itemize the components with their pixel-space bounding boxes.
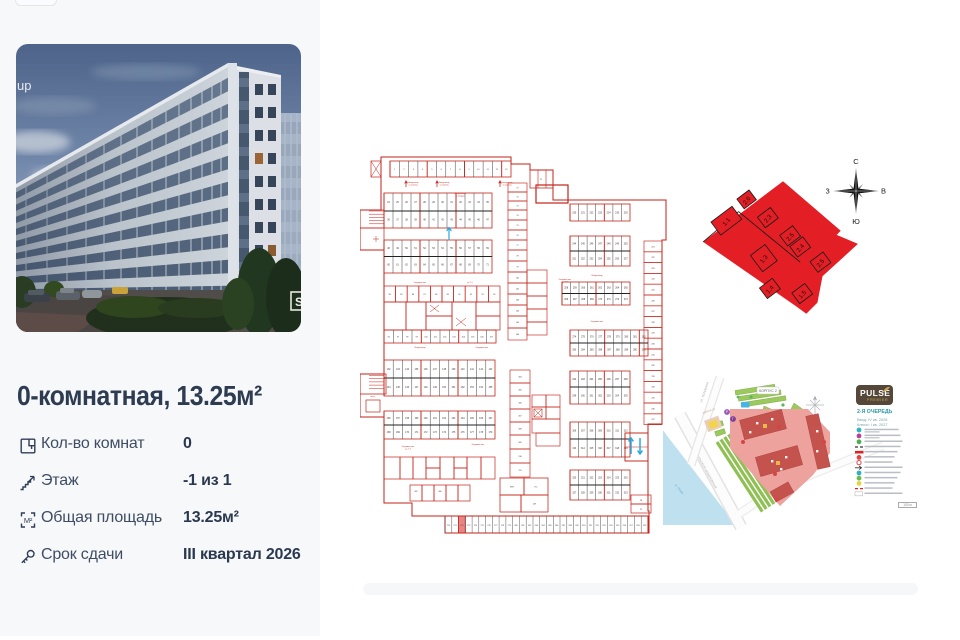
svg-text:по пандусу: по пандусу <box>455 195 464 197</box>
svg-text:233: 233 <box>598 212 603 214</box>
svg-text:271: 271 <box>454 525 458 527</box>
svg-text:259: 259 <box>573 288 578 290</box>
svg-text:55: 55 <box>450 248 453 250</box>
svg-text:235: 235 <box>651 398 655 400</box>
svg-text:314: 314 <box>581 448 586 450</box>
svg-text:323: 323 <box>598 477 603 479</box>
svg-text:281: 281 <box>633 336 638 338</box>
svg-text:311: 311 <box>615 430 619 432</box>
svg-text:66: 66 <box>441 265 444 267</box>
svg-text:88: 88 <box>435 294 438 296</box>
svg-text:101: 101 <box>516 277 520 279</box>
svg-text:71: 71 <box>486 265 489 267</box>
svg-text:287: 287 <box>607 349 612 351</box>
svg-text:27: 27 <box>414 202 417 204</box>
svg-text:277: 277 <box>598 336 603 338</box>
svg-text:290: 290 <box>582 525 586 527</box>
svg-text:У2: У2 <box>540 179 542 181</box>
svg-text:304: 304 <box>615 395 620 397</box>
svg-text:327: 327 <box>572 492 577 494</box>
svg-text:292: 292 <box>572 379 577 381</box>
svg-text:72: 72 <box>516 196 519 198</box>
svg-text:57: 57 <box>468 248 471 250</box>
svg-text:277: 277 <box>494 525 498 527</box>
svg-text:332: 332 <box>615 492 620 494</box>
svg-text:28: 28 <box>423 202 426 204</box>
svg-text:up: up <box>17 78 31 93</box>
svg-text:35: 35 <box>486 202 489 204</box>
svg-text:139: 139 <box>451 369 456 371</box>
svg-text:236: 236 <box>624 212 629 214</box>
svg-text:51: 51 <box>414 248 417 250</box>
svg-text:58: 58 <box>477 248 480 250</box>
svg-text:156: 156 <box>387 418 392 420</box>
svg-text:317: 317 <box>607 448 612 450</box>
svg-text:293: 293 <box>602 525 606 527</box>
svg-text:74: 74 <box>516 215 519 217</box>
svg-text:152: 152 <box>461 387 466 389</box>
svg-text:303: 303 <box>607 395 612 397</box>
svg-text:33: 33 <box>468 202 471 204</box>
svg-text:164: 164 <box>461 418 466 420</box>
svg-text:68: 68 <box>459 265 462 267</box>
svg-text:61: 61 <box>396 265 399 267</box>
svg-text:90: 90 <box>458 294 461 296</box>
svg-text:174: 174 <box>442 432 447 434</box>
svg-text:311: 311 <box>518 470 522 472</box>
svg-text:255: 255 <box>607 258 612 260</box>
svg-text:320: 320 <box>572 477 577 479</box>
svg-text:63: 63 <box>414 265 417 267</box>
svg-text:138: 138 <box>442 369 447 371</box>
svg-text:155: 155 <box>488 387 493 389</box>
svg-text:276: 276 <box>487 525 491 527</box>
svg-text:2: 2 <box>403 169 405 171</box>
svg-text:308: 308 <box>589 430 594 432</box>
svg-text:76: 76 <box>516 235 519 237</box>
svg-text:104: 104 <box>516 310 520 312</box>
svg-text:41: 41 <box>432 219 435 221</box>
svg-text:273: 273 <box>467 525 471 527</box>
svg-text:222: 222 <box>651 257 655 259</box>
svg-text:175: 175 <box>451 432 456 434</box>
svg-text:96: 96 <box>388 336 391 338</box>
svg-text:163: 163 <box>451 418 456 420</box>
svg-text:177: 177 <box>470 432 475 434</box>
svg-text:60: 60 <box>387 265 390 267</box>
svg-text:М²: М² <box>24 516 33 525</box>
svg-text:Р: Р <box>726 410 728 414</box>
svg-text:256: 256 <box>615 258 620 260</box>
svg-text:281: 281 <box>521 525 525 527</box>
svg-text:266: 266 <box>564 299 569 301</box>
svg-text:В: В <box>881 187 886 196</box>
svg-text:267: 267 <box>573 299 578 301</box>
svg-text:42: 42 <box>441 219 444 221</box>
svg-text:на отметку: на отметку <box>503 184 512 186</box>
svg-text:276: 276 <box>590 336 595 338</box>
svg-text:102: 102 <box>443 336 447 338</box>
svg-text:326: 326 <box>624 477 629 479</box>
svg-text:148: 148 <box>424 387 429 389</box>
svg-text:286: 286 <box>598 349 603 351</box>
svg-text:295: 295 <box>598 379 603 381</box>
svg-text:173: 173 <box>433 432 438 434</box>
svg-text:101: 101 <box>434 336 438 338</box>
svg-text:270: 270 <box>447 525 451 527</box>
svg-text:143: 143 <box>488 369 493 371</box>
svg-text:135: 135 <box>414 369 419 371</box>
svg-text:223: 223 <box>651 268 655 270</box>
svg-text:270: 270 <box>598 299 603 301</box>
svg-text:Кладовые пом.: Кладовые пом. <box>591 321 604 323</box>
svg-text:153: 153 <box>470 387 475 389</box>
svg-text:ИТП: ИТП <box>510 487 515 489</box>
svg-text:330: 330 <box>598 492 603 494</box>
svg-text:290: 290 <box>633 349 638 351</box>
svg-text:280: 280 <box>624 336 629 338</box>
svg-text:297: 297 <box>629 525 633 527</box>
svg-text:78: 78 <box>516 255 519 257</box>
svg-text:296: 296 <box>607 379 612 381</box>
svg-text:172: 172 <box>424 432 429 434</box>
svg-text:179: 179 <box>488 432 493 434</box>
svg-text:103: 103 <box>516 299 520 301</box>
svg-text:284: 284 <box>541 525 545 527</box>
svg-text:273: 273 <box>624 299 629 301</box>
svg-text:291: 291 <box>589 525 593 527</box>
svg-text:254: 254 <box>598 258 603 260</box>
svg-text:150: 150 <box>442 387 447 389</box>
svg-text:237: 237 <box>651 419 655 421</box>
svg-text:274: 274 <box>572 336 577 338</box>
svg-text:62: 62 <box>405 265 408 267</box>
svg-text:233: 233 <box>651 376 655 378</box>
svg-text:305: 305 <box>518 389 522 391</box>
svg-text:283: 283 <box>572 349 577 351</box>
svg-text:278: 278 <box>501 525 505 527</box>
svg-text:161: 161 <box>433 418 438 420</box>
svg-text:263: 263 <box>607 288 612 290</box>
svg-text:232: 232 <box>651 365 655 367</box>
svg-text:302: 302 <box>598 395 603 397</box>
svg-text:322: 322 <box>589 477 594 479</box>
svg-text:87: 87 <box>423 294 426 296</box>
svg-text:275: 275 <box>481 525 485 527</box>
svg-text:106: 106 <box>516 334 520 336</box>
svg-text:147: 147 <box>414 387 419 389</box>
svg-text:306: 306 <box>572 430 577 432</box>
svg-text:279: 279 <box>616 336 621 338</box>
svg-text:30: 30 <box>441 202 444 204</box>
svg-text:ПС: ПС <box>535 487 538 489</box>
svg-text:73: 73 <box>516 205 519 207</box>
svg-text:84: 84 <box>389 294 392 296</box>
svg-text:319: 319 <box>624 448 629 450</box>
svg-text:321: 321 <box>581 477 586 479</box>
svg-text:231: 231 <box>581 212 586 214</box>
svg-text:232: 232 <box>589 212 594 214</box>
svg-text:260: 260 <box>581 288 586 290</box>
svg-text:225: 225 <box>651 290 655 292</box>
svg-text:34: 34 <box>477 202 480 204</box>
svg-text:229: 229 <box>533 504 537 506</box>
svg-text:275: 275 <box>581 336 586 338</box>
svg-text:282: 282 <box>528 525 532 527</box>
svg-text:229: 229 <box>651 333 655 335</box>
svg-text:49: 49 <box>396 248 399 250</box>
svg-text:262: 262 <box>598 288 603 290</box>
svg-text:251: 251 <box>572 258 577 260</box>
svg-text:269: 269 <box>590 299 595 301</box>
svg-text:104: 104 <box>462 336 466 338</box>
svg-text:285: 285 <box>548 525 552 527</box>
svg-text:331: 331 <box>607 492 612 494</box>
svg-text:257: 257 <box>624 258 629 260</box>
svg-text:288: 288 <box>569 525 573 527</box>
svg-text:289: 289 <box>575 525 579 527</box>
svg-text:333: 333 <box>624 492 629 494</box>
svg-text:274: 274 <box>474 525 478 527</box>
svg-text:236: 236 <box>651 408 655 410</box>
svg-text:244: 244 <box>572 243 577 245</box>
svg-text:1: 1 <box>394 169 396 171</box>
svg-text:280: 280 <box>514 525 518 527</box>
svg-text:31: 31 <box>450 202 453 204</box>
svg-text:328: 328 <box>581 492 586 494</box>
svg-text:137: 137 <box>433 369 438 371</box>
svg-text:91: 91 <box>470 294 473 296</box>
svg-text:264: 264 <box>615 288 620 290</box>
svg-text:271: 271 <box>607 299 612 301</box>
svg-text:245: 245 <box>581 243 586 245</box>
svg-text:лестн.: лестн. <box>370 396 376 398</box>
svg-text:265: 265 <box>624 288 629 290</box>
svg-text:158: 158 <box>405 418 410 420</box>
svg-text:39: 39 <box>414 219 417 221</box>
svg-text:310: 310 <box>518 456 522 458</box>
svg-text:297: 297 <box>615 379 620 381</box>
svg-text:13: 13 <box>505 169 508 171</box>
svg-text:301: 301 <box>589 395 594 397</box>
svg-text:38: 38 <box>405 219 408 221</box>
svg-text:231: 231 <box>651 354 655 356</box>
svg-text:247: 247 <box>598 243 603 245</box>
svg-text:29: 29 <box>432 202 435 204</box>
svg-text:307: 307 <box>581 430 586 432</box>
svg-text:166: 166 <box>479 418 484 420</box>
svg-text:УЗ: УЗ <box>640 509 642 511</box>
svg-text:249: 249 <box>615 243 620 245</box>
svg-text:325: 325 <box>615 477 620 479</box>
svg-text:40: 40 <box>423 219 426 221</box>
svg-text:366: 366 <box>438 491 441 493</box>
svg-text:9: 9 <box>469 169 471 171</box>
svg-text:154: 154 <box>479 387 484 389</box>
svg-text:105: 105 <box>471 336 475 338</box>
svg-text:315: 315 <box>589 448 594 450</box>
svg-text:Кладовые пом.: Кладовые пом. <box>472 444 485 446</box>
svg-text:70: 70 <box>477 265 480 267</box>
svg-text:289: 289 <box>624 349 629 351</box>
svg-text:6: 6 <box>441 169 443 171</box>
svg-text:168: 168 <box>387 432 392 434</box>
svg-text:258: 258 <box>564 288 569 290</box>
svg-text:230: 230 <box>572 212 577 214</box>
svg-text:24: 24 <box>387 202 390 204</box>
svg-text:10: 10 <box>477 169 480 171</box>
svg-text:293: 293 <box>581 379 586 381</box>
svg-text:на отметку: на отметку <box>409 184 418 186</box>
svg-text:268: 268 <box>581 299 586 301</box>
svg-text:26: 26 <box>405 202 408 204</box>
svg-text:308: 308 <box>518 428 522 430</box>
svg-text:149: 149 <box>433 387 438 389</box>
svg-text:52: 52 <box>423 248 426 250</box>
svg-text:86: 86 <box>412 294 415 296</box>
svg-text:69: 69 <box>468 265 471 267</box>
svg-text:226: 226 <box>651 300 655 302</box>
svg-text:294: 294 <box>589 379 594 381</box>
svg-text:3: 3 <box>413 169 415 171</box>
svg-text:227: 227 <box>651 311 655 313</box>
svg-text:106: 106 <box>480 336 484 338</box>
svg-text:272: 272 <box>615 299 620 301</box>
svg-text:67: 67 <box>450 265 453 267</box>
svg-text:294: 294 <box>609 525 613 527</box>
svg-text:279: 279 <box>508 525 512 527</box>
svg-text:89: 89 <box>447 294 450 296</box>
svg-text:75: 75 <box>516 225 519 227</box>
svg-text:295: 295 <box>616 525 620 527</box>
svg-text:309: 309 <box>518 442 522 444</box>
svg-text:7: 7 <box>450 169 452 171</box>
svg-text:64: 64 <box>423 265 426 267</box>
svg-text:32: 32 <box>459 202 462 204</box>
svg-text:54: 54 <box>441 248 444 250</box>
svg-text:171: 171 <box>414 432 419 434</box>
svg-text:Г: Г <box>732 417 734 421</box>
svg-text:151: 151 <box>451 387 456 389</box>
svg-text:56: 56 <box>459 248 462 250</box>
svg-text:278: 278 <box>607 336 612 338</box>
svg-text:298: 298 <box>636 525 640 527</box>
svg-text:316: 316 <box>598 448 603 450</box>
svg-text:134: 134 <box>405 369 410 371</box>
svg-text:299: 299 <box>572 395 577 397</box>
svg-text:142: 142 <box>479 369 484 371</box>
svg-text:324: 324 <box>607 477 612 479</box>
svg-text:12: 12 <box>496 169 499 171</box>
svg-text:309: 309 <box>598 430 603 432</box>
svg-text:77: 77 <box>516 245 519 247</box>
svg-text:176: 176 <box>461 432 466 434</box>
svg-text:11: 11 <box>487 169 490 171</box>
svg-text:144: 144 <box>387 387 392 389</box>
svg-text:306: 306 <box>518 402 522 404</box>
svg-text:25: 25 <box>396 202 399 204</box>
svg-text:100: 100 <box>424 336 428 338</box>
svg-text:234: 234 <box>607 212 612 214</box>
svg-text:50: 50 <box>405 248 408 250</box>
svg-text:102: 102 <box>516 288 520 290</box>
svg-text:234: 234 <box>651 387 655 389</box>
svg-text:178: 178 <box>479 432 484 434</box>
svg-text:235: 235 <box>615 212 620 214</box>
svg-text:136: 136 <box>424 369 429 371</box>
svg-text:46: 46 <box>477 219 480 221</box>
svg-text:79: 79 <box>516 266 519 268</box>
svg-text:97: 97 <box>397 336 400 338</box>
svg-text:140: 140 <box>461 369 466 371</box>
svg-text:на отметку: на отметку <box>440 184 449 186</box>
svg-text:98: 98 <box>406 336 409 338</box>
svg-text:141: 141 <box>470 369 475 371</box>
svg-text:261: 261 <box>590 288 595 290</box>
svg-text:299: 299 <box>643 525 647 527</box>
svg-text:230: 230 <box>651 344 655 346</box>
svg-text:99: 99 <box>416 336 419 338</box>
svg-text:284: 284 <box>581 349 586 351</box>
svg-text:59: 59 <box>486 248 489 250</box>
svg-text:246: 246 <box>589 243 594 245</box>
svg-text:71: 71 <box>516 187 519 189</box>
svg-text:Въезд-выезд: Въезд-выезд <box>592 275 604 277</box>
svg-text:285: 285 <box>590 349 595 351</box>
svg-text:8: 8 <box>459 169 461 171</box>
svg-text:92: 92 <box>481 294 484 296</box>
svg-text:65: 65 <box>432 265 435 267</box>
svg-text:162: 162 <box>442 418 447 420</box>
svg-text:310: 310 <box>607 430 612 432</box>
svg-text:146: 146 <box>405 387 410 389</box>
svg-text:105: 105 <box>516 322 520 324</box>
svg-text:уч. 7.2: уч. 7.2 <box>467 282 472 284</box>
svg-text:УЕ: УЕ <box>640 500 643 502</box>
svg-text:329: 329 <box>589 492 594 494</box>
svg-text:224: 224 <box>651 279 655 281</box>
svg-text:С: С <box>853 157 859 166</box>
svg-text:47: 47 <box>486 219 489 221</box>
svg-text:307: 307 <box>518 415 522 417</box>
svg-text:44: 44 <box>459 219 462 221</box>
svg-text:298: 298 <box>624 379 629 381</box>
svg-text:228: 228 <box>651 322 655 324</box>
svg-text:53: 53 <box>432 248 435 250</box>
svg-text:107: 107 <box>490 336 494 338</box>
svg-text:170: 170 <box>405 432 410 434</box>
svg-text:292: 292 <box>596 525 600 527</box>
svg-text:5: 5 <box>431 169 433 171</box>
svg-text:160: 160 <box>424 418 429 420</box>
svg-text:221: 221 <box>651 246 655 248</box>
svg-text:48: 48 <box>387 248 390 250</box>
svg-text:318: 318 <box>615 448 620 450</box>
svg-text:Въезд-выезд: Въезд-выезд <box>415 347 427 349</box>
svg-text:287: 287 <box>562 525 566 527</box>
svg-text:45: 45 <box>468 219 471 221</box>
svg-text:286: 286 <box>555 525 559 527</box>
svg-text:85: 85 <box>400 294 403 296</box>
svg-text:288: 288 <box>616 349 621 351</box>
svg-text:4: 4 <box>422 169 424 171</box>
svg-text:250: 250 <box>624 243 629 245</box>
svg-text:Кладовые пом.: Кладовые пом. <box>414 282 427 284</box>
svg-text:312: 312 <box>624 430 629 432</box>
svg-text:159: 159 <box>414 418 419 420</box>
svg-text:169: 169 <box>396 432 401 434</box>
svg-text:103: 103 <box>452 336 456 338</box>
